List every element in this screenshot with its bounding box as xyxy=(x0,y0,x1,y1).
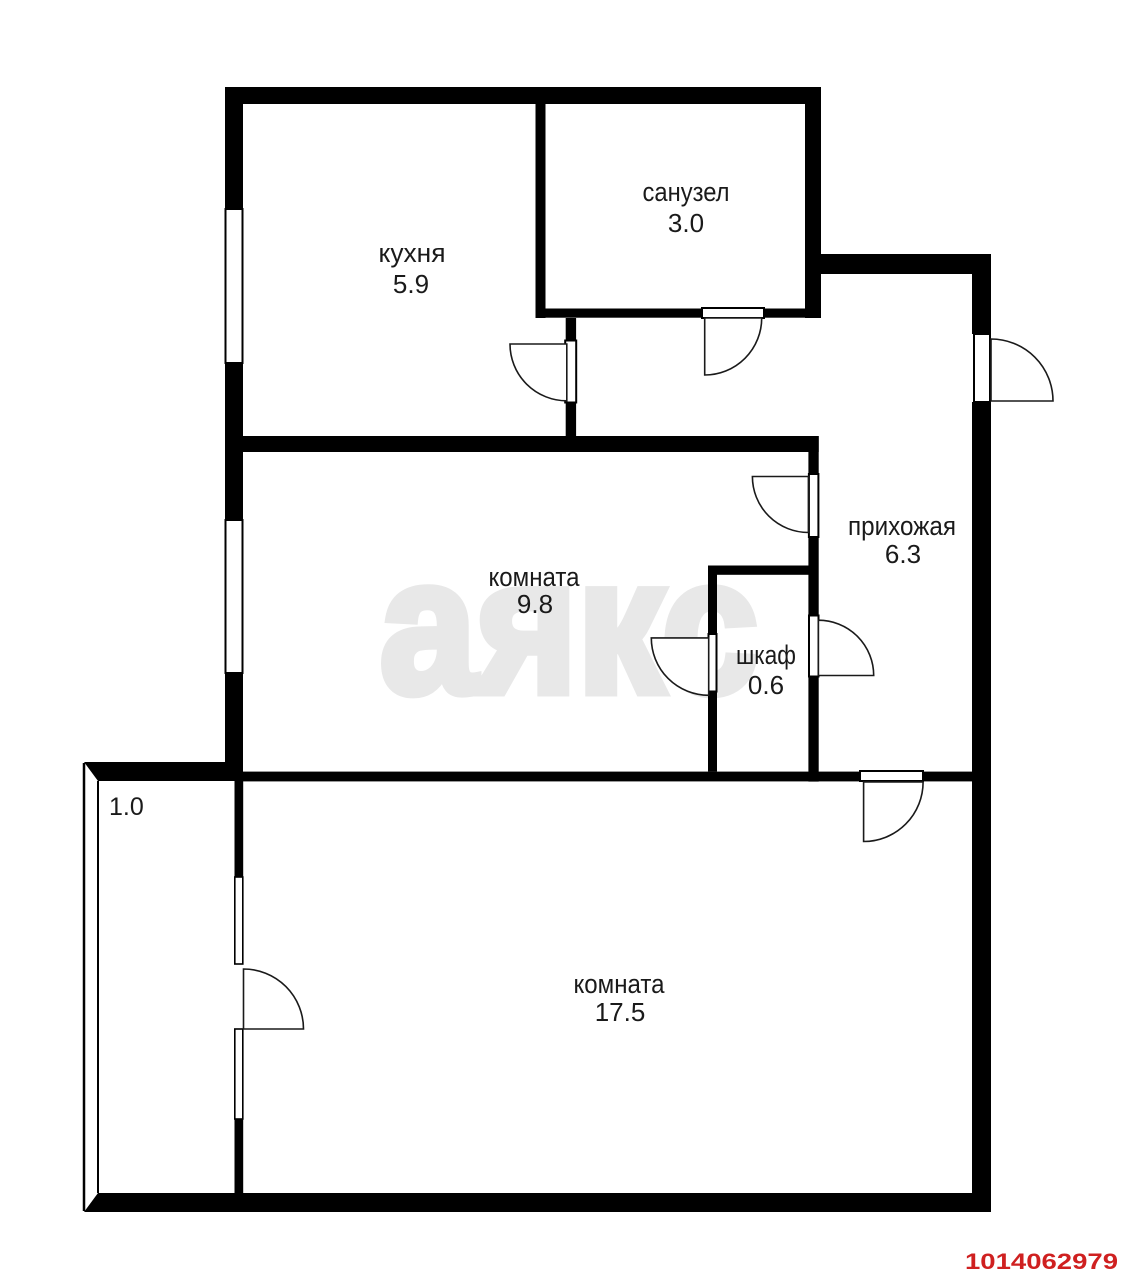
svg-text:6.3: 6.3 xyxy=(885,539,921,569)
svg-text:17.5: 17.5 xyxy=(595,997,646,1027)
svg-text:0.6: 0.6 xyxy=(748,670,784,700)
svg-text:комната: комната xyxy=(489,562,581,592)
svg-text:5.9: 5.9 xyxy=(393,269,429,299)
svg-text:комната: комната xyxy=(574,969,666,999)
svg-text:3.0: 3.0 xyxy=(668,208,704,238)
svg-text:аякс: аякс xyxy=(380,518,758,733)
svg-text:1.0: 1.0 xyxy=(109,793,144,821)
svg-text:шкаф: шкаф xyxy=(736,640,796,670)
svg-text:кухня: кухня xyxy=(379,238,446,268)
svg-text:9.8: 9.8 xyxy=(517,589,553,619)
svg-text:прихожая: прихожая xyxy=(848,511,956,541)
svg-text:1014062979: 1014062979 xyxy=(965,1249,1118,1274)
svg-text:санузел: санузел xyxy=(643,177,730,207)
